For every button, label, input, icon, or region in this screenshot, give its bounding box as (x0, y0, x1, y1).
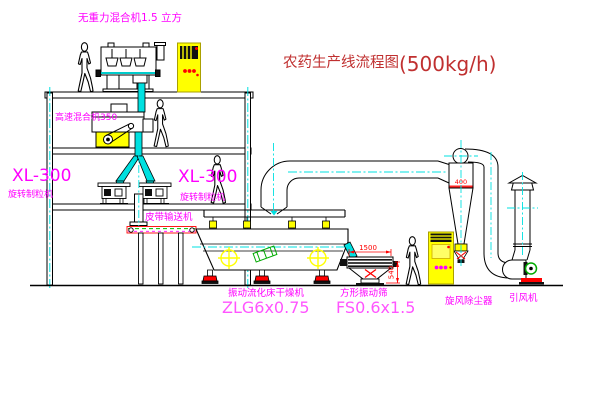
granulator-left-model: XL-300 (12, 166, 71, 186)
screen-feed-chute (344, 242, 357, 259)
screen-model: FS0.6x1.5 (336, 298, 415, 317)
rotary-granulator-left (98, 183, 130, 204)
floor-slab-top (45, 92, 253, 98)
page-title-capacity: (500kg/h) (399, 52, 496, 76)
cyclone-label: 旋风除尘器 (445, 295, 493, 307)
high-speed-mixer-label: 高速混合机350 (55, 111, 117, 123)
granulator-right-label: 旋转制粒机 (180, 191, 225, 203)
screen-height-dim: 540 (388, 266, 396, 279)
floor-slab-low (47, 204, 251, 210)
belt-conveyor (127, 227, 196, 285)
belt-conveyor-label: 皮带输送机 (145, 211, 193, 223)
rotary-granulator-right (139, 183, 171, 204)
gravity-free-mixer (96, 43, 166, 92)
dryer-model: ZLG6x0.75 (222, 298, 310, 317)
dryer-hangers (210, 217, 330, 228)
fan-base (521, 278, 542, 282)
person-top-floor (78, 43, 93, 92)
conveyor-leg (179, 233, 184, 284)
mixer-paddles (106, 49, 146, 66)
screen-motor (340, 259, 347, 266)
granulator-left-label: 旋转制粒机 (8, 188, 53, 200)
dryer-feet (202, 270, 330, 284)
diagram-svg: 400 (0, 0, 600, 403)
control-cabinet-top (178, 43, 201, 92)
exhaust-stack (507, 172, 538, 260)
screen-width-dim: 1500 (359, 244, 377, 252)
induced-draft-fan (503, 260, 545, 285)
person-mid-floor (154, 100, 168, 147)
indicator-light (195, 47, 198, 50)
gravity-mixer-label: 无重力混合机1.5 立方 (78, 11, 182, 24)
exhaust-duct (261, 143, 449, 216)
y-chute (116, 156, 155, 186)
person-ground (406, 237, 421, 285)
mixer-discharge-pipe (138, 83, 145, 112)
fan-label: 引风机 (509, 292, 538, 304)
page-title: 农药生产线流程图 (283, 54, 399, 71)
fluid-bed-dryer (192, 210, 352, 284)
conveyor-leg (139, 233, 144, 284)
floor-slab-mid (47, 148, 251, 154)
conveyor-leg (159, 233, 164, 284)
flow-diagram: 400 (0, 0, 600, 403)
control-cabinet-screen (429, 232, 454, 284)
indicator-light (447, 246, 450, 249)
granulator-right-model: XL-300 (178, 167, 237, 187)
